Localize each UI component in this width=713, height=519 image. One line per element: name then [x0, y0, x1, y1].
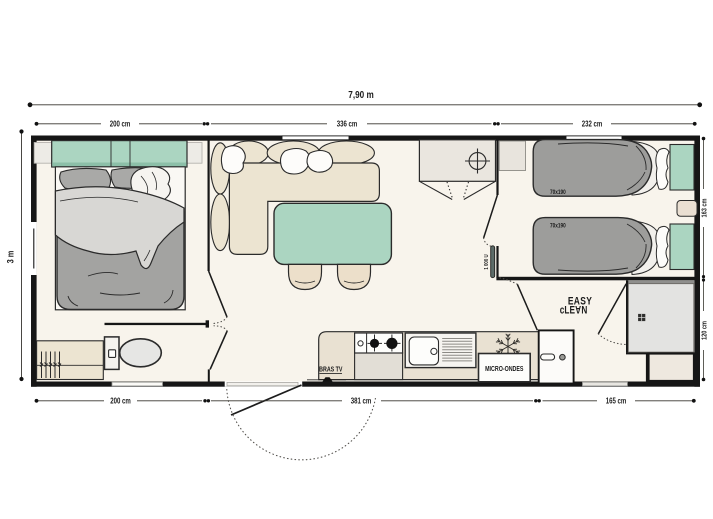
svg-text:70x190: 70x190 [550, 223, 566, 230]
svg-text:A: A [575, 303, 581, 315]
svg-text:336 cm: 336 cm [337, 120, 358, 129]
svg-text:cLE: cLE [560, 305, 575, 317]
svg-text:381 cm: 381 cm [351, 397, 372, 406]
svg-text:200 cm: 200 cm [110, 120, 131, 129]
svg-text:165 cm: 165 cm [606, 397, 627, 406]
svg-text:200 cm: 200 cm [110, 397, 131, 406]
svg-text:BRAS TV: BRAS TV [319, 366, 343, 374]
svg-text:120 cm: 120 cm [701, 321, 709, 340]
svg-text:232 cm: 232 cm [582, 120, 603, 129]
svg-text:MICRO-ONDES: MICRO-ONDES [485, 366, 523, 374]
svg-text:1 000 U: 1 000 U [483, 254, 490, 270]
svg-text:7,90 m: 7,90 m [348, 88, 373, 100]
svg-text:70x190: 70x190 [550, 189, 566, 196]
svg-text:3 m: 3 m [5, 250, 16, 263]
svg-text:163 cm: 163 cm [701, 198, 709, 217]
svg-text:N: N [581, 305, 587, 317]
